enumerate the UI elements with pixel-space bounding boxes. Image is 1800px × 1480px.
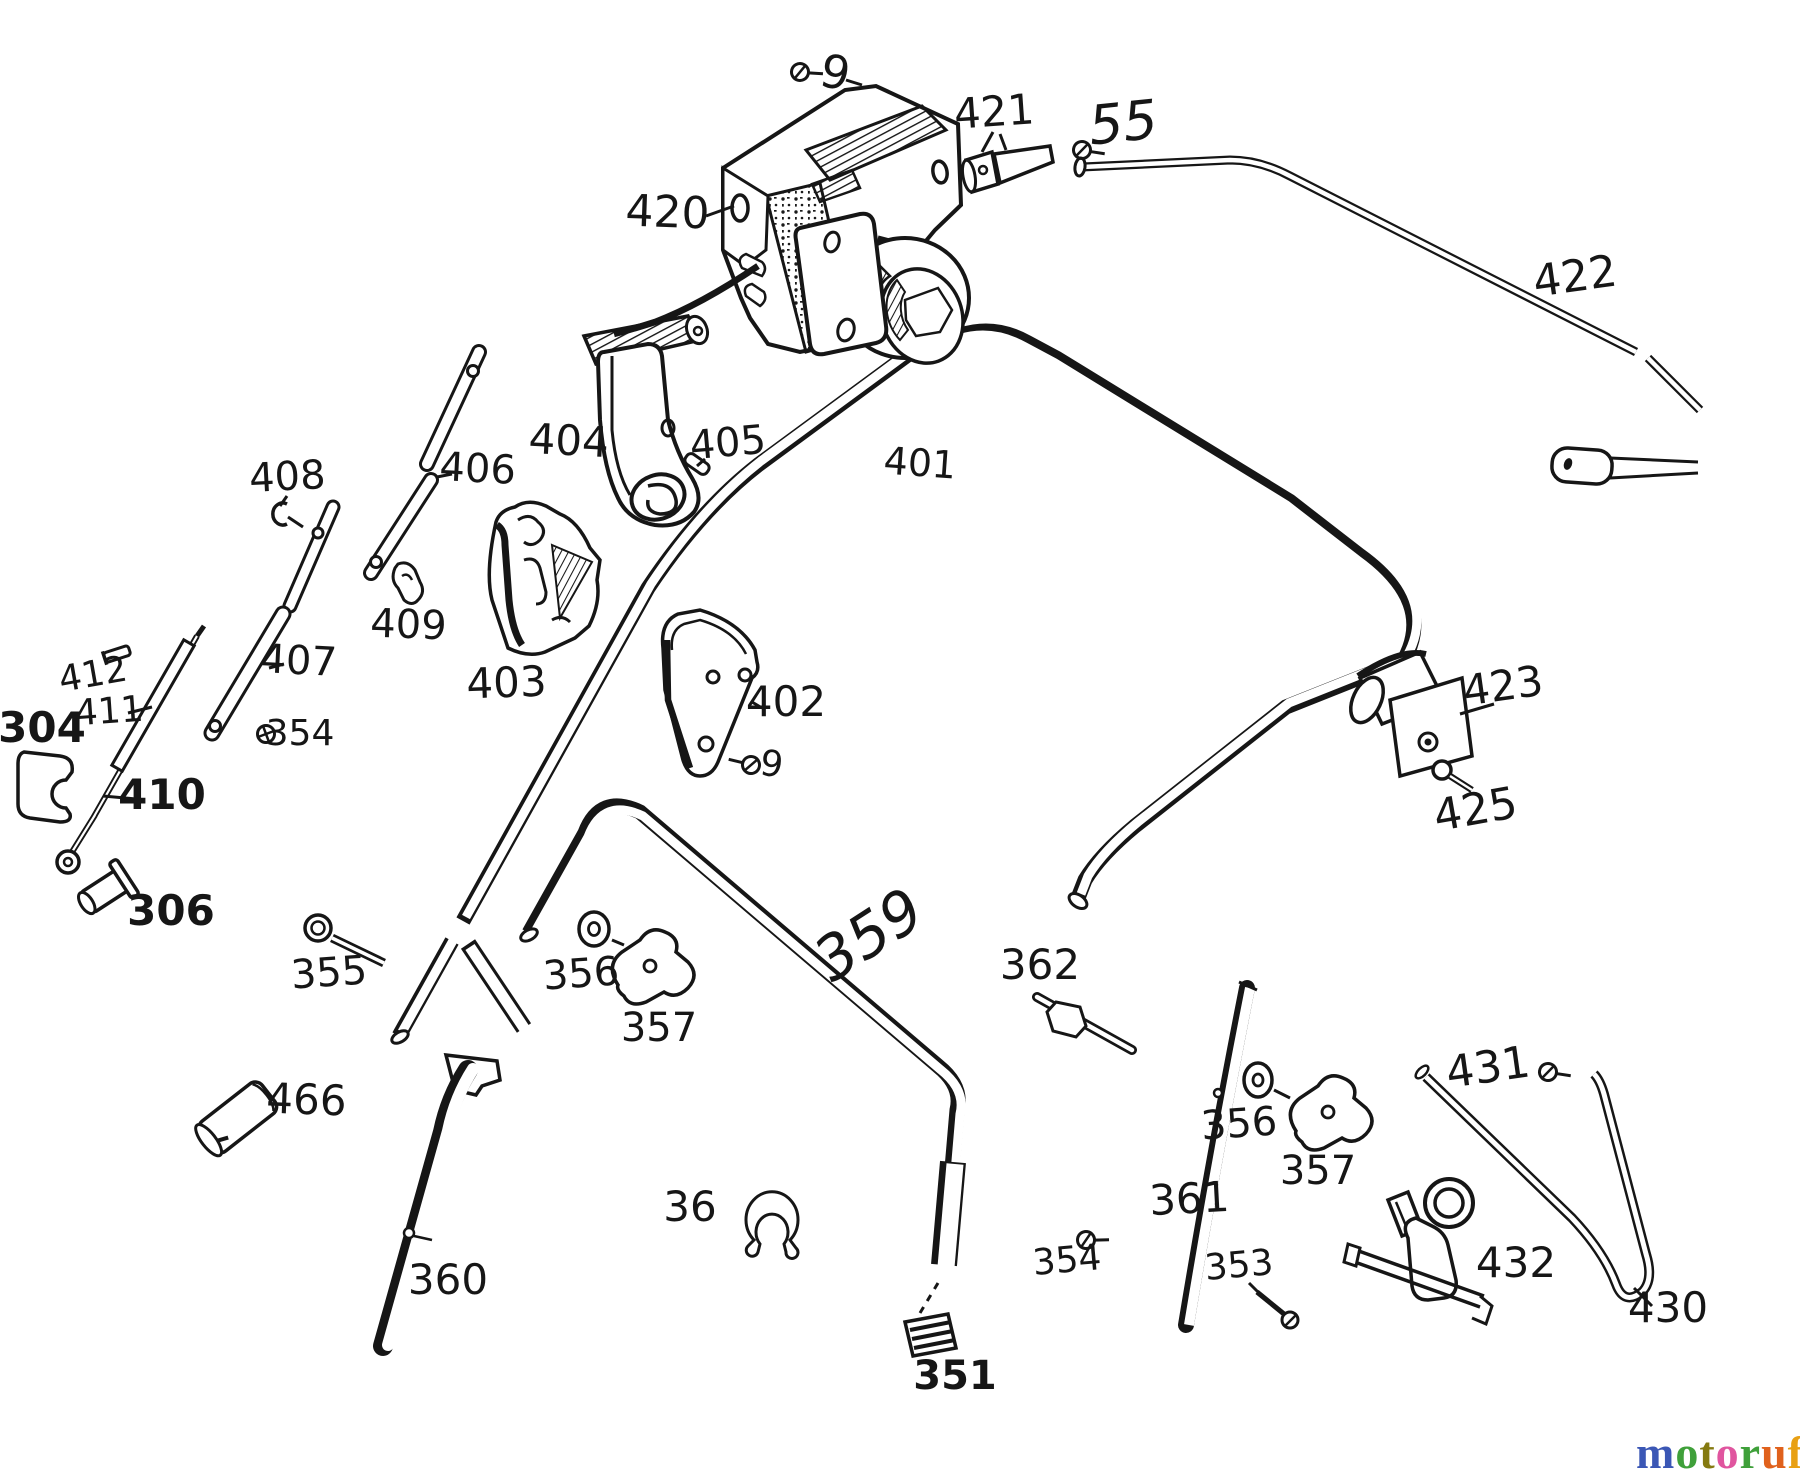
- part-label-409: 409: [369, 601, 447, 650]
- logo-letter: o: [1675, 1427, 1699, 1478]
- leader-line-15: [920, 1283, 938, 1313]
- part-label-420: 420: [625, 186, 711, 240]
- motoruf-logo[interactable]: motoruf.de: [1636, 1430, 1800, 1480]
- part-label-405: 405: [688, 417, 768, 469]
- part-label-351: 351: [913, 1353, 997, 1399]
- part-label-403: 403: [466, 657, 548, 709]
- part-label-410: 410: [118, 770, 206, 819]
- part-label-361: 361: [1148, 1172, 1231, 1225]
- part-304-cable-clip: [18, 752, 72, 822]
- part-label-402: 402: [746, 677, 826, 726]
- part-label-357-left: 357: [621, 1005, 697, 1051]
- screw-9-mid-icon: [729, 750, 762, 780]
- part-label-425: 425: [1430, 777, 1522, 842]
- part-422-bowden-cable: [1074, 157, 1700, 485]
- part-label-306: 306: [127, 886, 215, 935]
- part-label-407: 407: [259, 636, 338, 686]
- part-409-bracket: [393, 563, 422, 604]
- parts-diagram-page: 9421554204224044054064084014094124074113…: [0, 0, 1800, 1480]
- part-label-466: 466: [266, 1074, 348, 1126]
- cable-ferrule: [1551, 447, 1698, 485]
- part-423-cable-clamp: [1344, 652, 1472, 776]
- part-357-wing-knob-left: [612, 930, 694, 1004]
- logo-letter: t: [1699, 1427, 1715, 1478]
- part-label-404: 404: [527, 414, 610, 467]
- part-351-cable-fitting: [905, 1314, 956, 1356]
- logo-letter: o: [1716, 1427, 1740, 1478]
- part-432-latch-bracket: [1344, 1179, 1492, 1324]
- part-label-362: 362: [1000, 940, 1080, 989]
- part-label-432: 432: [1476, 1238, 1556, 1287]
- logo-letter: r: [1740, 1427, 1761, 1478]
- part-label-9-mid: 9: [757, 743, 785, 787]
- part-label-406: 406: [438, 444, 517, 494]
- part-label-36: 36: [663, 1182, 716, 1231]
- part-353-screw: [1257, 1292, 1298, 1328]
- part-402-bracket-plate: [663, 610, 758, 776]
- part-356-washer-left: [579, 912, 609, 946]
- part-label-430: 430: [1628, 1283, 1708, 1332]
- part-label-353: 353: [1203, 1242, 1275, 1289]
- part-label-423: 423: [1460, 656, 1546, 716]
- logo-letter: u: [1761, 1427, 1788, 1478]
- exploded-parts-diagram: 9421554204224044054064084014094124074113…: [0, 0, 1800, 1480]
- part-label-408: 408: [248, 452, 327, 502]
- part-label-356-right: 356: [1199, 1098, 1278, 1149]
- part-407-link-rod: [210, 507, 334, 733]
- part-label-355: 355: [289, 947, 368, 998]
- leader-line-11: [612, 940, 624, 945]
- motoruf-logo-letters: motoruf: [1636, 1427, 1800, 1478]
- part-label-55: 55: [1086, 88, 1161, 158]
- part-label-401: 401: [882, 439, 957, 488]
- part-420-switch-housing: [723, 86, 976, 375]
- part-label-359: 359: [802, 875, 936, 996]
- part-362-stud: [1037, 997, 1132, 1050]
- part-408-clip: [273, 503, 303, 527]
- part-label-356-left: 356: [541, 948, 620, 999]
- part-label-354-bottom: 354: [1031, 1237, 1103, 1284]
- logo-letter: m: [1636, 1427, 1675, 1478]
- part-label-357-right: 357: [1280, 1148, 1356, 1194]
- part-403-cover-shroud: [489, 502, 600, 654]
- logo-letter: f: [1788, 1427, 1800, 1478]
- leader-line-12: [1274, 1090, 1290, 1098]
- part-label-354-left: 354: [266, 713, 335, 754]
- screw-431-icon: [1537, 1056, 1571, 1087]
- part-label-304: 304: [0, 703, 86, 752]
- part-356-washer-right: [1244, 1063, 1272, 1097]
- part-label-360: 360: [408, 1255, 488, 1304]
- part-label-422: 422: [1530, 246, 1620, 308]
- part-36-clip: [746, 1192, 798, 1259]
- part-421-switch-key: [960, 134, 1053, 193]
- part-label-431: 431: [1443, 1037, 1533, 1099]
- part-label-421: 421: [952, 84, 1035, 138]
- part-357-wing-knob-right: [1290, 1076, 1372, 1150]
